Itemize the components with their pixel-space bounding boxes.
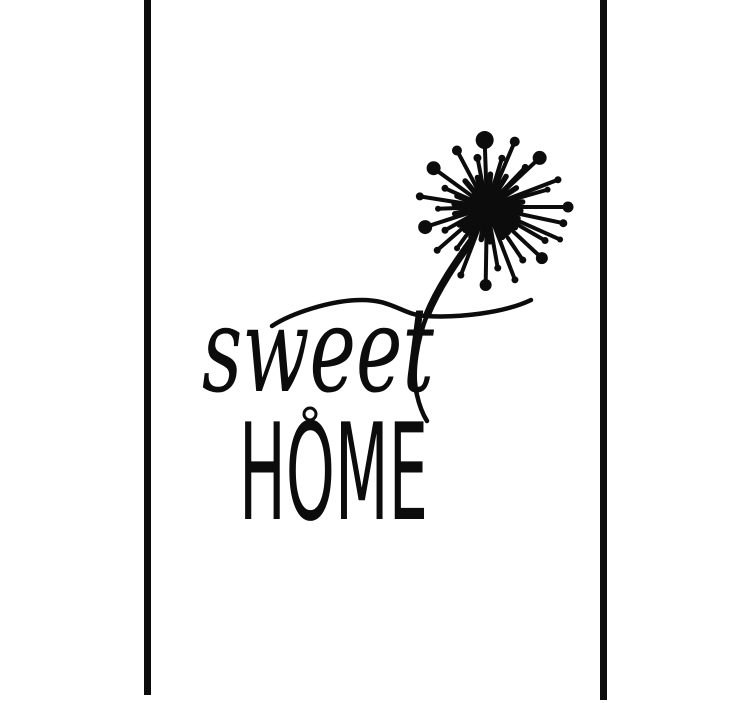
dandelion-seed-dot	[511, 276, 518, 283]
dandelion-seed-dot	[542, 237, 549, 244]
dandelion-seed-dot	[559, 219, 567, 227]
dandelion-seed-dot	[452, 145, 462, 155]
caps-word-home: HOME	[239, 395, 428, 551]
dandelion-seed-dot	[435, 206, 441, 212]
dandelion-seed-dot	[416, 192, 424, 200]
dandelion-seed-dot	[454, 245, 460, 251]
dandelion-core	[467, 187, 507, 227]
dandelion-flower	[415, 131, 574, 421]
dandelion-seed-dot	[494, 265, 501, 272]
dandelion-seed-dot	[473, 154, 481, 162]
dandelion-seed-dot	[441, 185, 448, 192]
dandelion-seed-dot	[554, 176, 561, 183]
dandelion-seed-dot	[545, 187, 551, 193]
dandelion-seed-dot	[498, 155, 505, 162]
dandelion-seed-dot	[480, 279, 492, 291]
dandelion-seed-dot	[442, 227, 449, 234]
letter-o-ring-icon	[304, 408, 316, 420]
dandelion-seed-dot	[418, 220, 432, 234]
dandelion-seed-dot	[519, 257, 526, 264]
dandelion-seed-dot	[434, 247, 441, 254]
dandelion-seed-dot	[427, 161, 441, 175]
dandelion-seed-dot	[536, 252, 548, 264]
sweet-home-poster: sweet HOME	[0, 0, 752, 703]
dandelion-seed-dot	[533, 151, 547, 165]
sweet-home-artwork: sweet HOME	[0, 0, 752, 703]
dandelion-seed-dot	[457, 272, 464, 279]
dandelion-seed-dot	[522, 164, 529, 171]
dandelion-seed-dot	[510, 137, 520, 147]
dandelion-seed-dot	[557, 237, 563, 243]
dandelion-seed-dot	[476, 131, 494, 149]
dandelion-seed-dot	[563, 202, 574, 213]
